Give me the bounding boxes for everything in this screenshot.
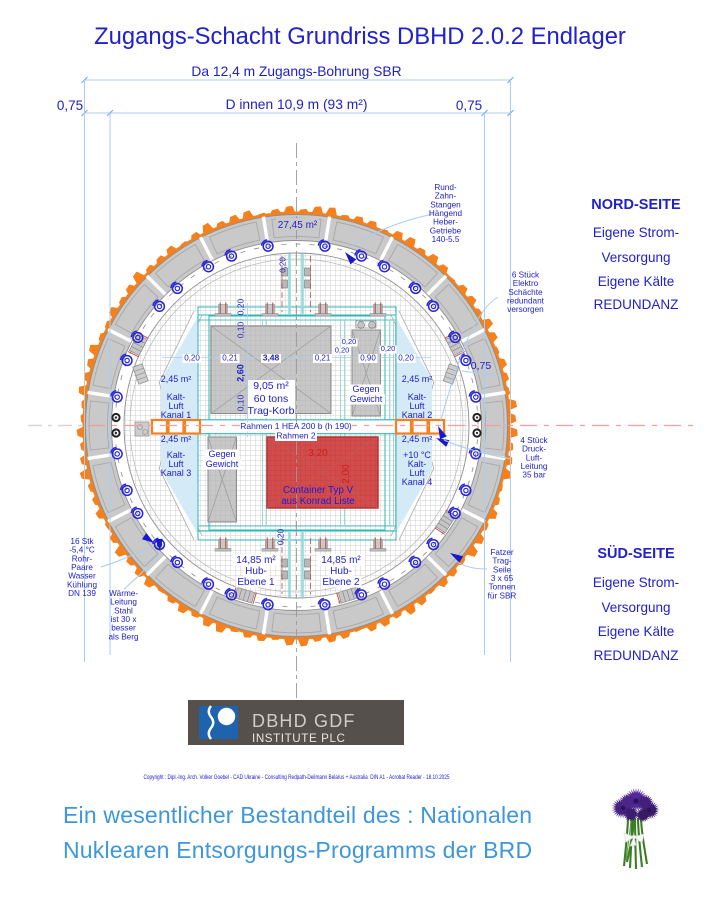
svg-text:REDUNDANZ: REDUNDANZ xyxy=(594,648,679,663)
svg-text:0,20: 0,20 xyxy=(335,346,350,355)
svg-text:aus Konrad Liste: aus Konrad Liste xyxy=(281,496,355,507)
svg-text:als Berg: als Berg xyxy=(108,632,138,641)
svg-text:Kanal 2: Kanal 2 xyxy=(402,410,433,420)
svg-text:0,75: 0,75 xyxy=(471,360,492,372)
svg-text:Container Typ V: Container Typ V xyxy=(283,485,354,496)
svg-text:Trag-: Trag- xyxy=(492,557,512,566)
svg-text:REDUNDANZ: REDUNDANZ xyxy=(594,297,679,312)
svg-text:6 Stück: 6 Stück xyxy=(512,271,540,280)
svg-text:Hub-: Hub- xyxy=(330,566,352,577)
svg-text:Kanal 1: Kanal 1 xyxy=(161,410,192,420)
svg-text:Luft-: Luft- xyxy=(526,453,543,462)
svg-text:2,45 m²: 2,45 m² xyxy=(402,374,433,384)
svg-text:Druck-: Druck- xyxy=(522,445,546,454)
svg-text:Ein wesentlicher Bestandteil d: Ein wesentlicher Bestandteil des : Natio… xyxy=(63,802,532,828)
svg-text:4 Stück: 4 Stück xyxy=(520,436,548,445)
svg-text:Hängend: Hängend xyxy=(429,209,463,218)
svg-text:Rahmen 1 HEA 200 b (h 190): Rahmen 1 HEA 200 b (h 190) xyxy=(240,421,352,431)
svg-text:Versorgung: Versorgung xyxy=(601,250,670,265)
svg-text:0,75: 0,75 xyxy=(57,98,83,113)
svg-text:0,21: 0,21 xyxy=(315,354,331,363)
svg-text:0,21: 0,21 xyxy=(222,354,238,363)
svg-text:Leitung: Leitung xyxy=(521,462,548,471)
svg-text:Eigene Strom-: Eigene Strom- xyxy=(593,575,679,590)
svg-text:0,10: 0,10 xyxy=(236,321,246,338)
svg-text:Wasser: Wasser xyxy=(68,572,96,581)
svg-text:Tonnen: Tonnen xyxy=(489,583,516,592)
svg-text:Elektro: Elektro xyxy=(513,279,539,288)
svg-text:Eigene Strom-: Eigene Strom- xyxy=(593,225,679,240)
svg-text:versorgen: versorgen xyxy=(507,305,544,314)
svg-text:2,00: 2,00 xyxy=(341,464,352,484)
svg-text:0,20: 0,20 xyxy=(279,257,288,273)
svg-text:Versorgung: Versorgung xyxy=(601,600,670,615)
svg-text:redundant: redundant xyxy=(507,296,545,305)
svg-text:Trag-Korb: Trag-Korb xyxy=(248,405,295,417)
svg-text:für SBR: für SBR xyxy=(488,591,517,600)
svg-text:0,20: 0,20 xyxy=(398,354,414,363)
svg-text:3,48: 3,48 xyxy=(263,353,280,363)
svg-text:Gewicht: Gewicht xyxy=(350,394,383,404)
svg-text:0,20: 0,20 xyxy=(276,528,286,545)
svg-text:3 x 65: 3 x 65 xyxy=(491,574,514,583)
svg-text:140-5.5: 140-5.5 xyxy=(432,235,460,244)
svg-text:3,20: 3,20 xyxy=(308,448,328,459)
svg-text:0,10: 0,10 xyxy=(236,394,246,411)
svg-text:Stahl: Stahl xyxy=(114,606,133,615)
svg-text:16 Stk: 16 Stk xyxy=(70,537,94,546)
svg-text:INSTITUTE PLC: INSTITUTE PLC xyxy=(252,732,345,745)
svg-text:27,45 m²: 27,45 m² xyxy=(278,220,318,231)
svg-text:Fatzer: Fatzer xyxy=(490,548,513,557)
svg-text:2,45 m²: 2,45 m² xyxy=(402,434,433,444)
svg-text:Copyright : Dipl.-Ing. Arch. V: Copyright : Dipl.-Ing. Arch. Volker Goeb… xyxy=(144,774,450,781)
svg-text:Eigene Kälte: Eigene Kälte xyxy=(598,624,675,639)
svg-text:Kanal 4: Kanal 4 xyxy=(402,477,433,487)
svg-text:DBHD GDF: DBHD GDF xyxy=(252,711,356,731)
svg-text:2,60: 2,60 xyxy=(236,364,246,382)
svg-text:Eigene Kälte: Eigene Kälte xyxy=(598,274,675,289)
svg-text:0,20: 0,20 xyxy=(381,344,396,353)
svg-text:Paare: Paare xyxy=(71,563,93,572)
svg-text:Leitung: Leitung xyxy=(110,598,137,607)
svg-text:ist 30 x: ist 30 x xyxy=(111,615,137,624)
svg-text:NORD-SEITE: NORD-SEITE xyxy=(591,197,681,213)
svg-text:9,05 m²: 9,05 m² xyxy=(253,380,289,392)
svg-text:Schächte: Schächte xyxy=(508,288,543,297)
svg-text:35 bar: 35 bar xyxy=(522,471,545,480)
svg-text:14,85 m²: 14,85 m² xyxy=(321,555,361,566)
svg-text:Da 12,4 m Zugangs-Bohrung SBR: Da 12,4 m Zugangs-Bohrung SBR xyxy=(191,64,401,79)
svg-text:besser: besser xyxy=(111,624,136,633)
svg-text:Rohr-: Rohr- xyxy=(72,554,93,563)
svg-text:Gegen: Gegen xyxy=(352,384,379,394)
svg-text:Nuklearen Entsorgungs-Programm: Nuklearen Entsorgungs-Programms der BRD xyxy=(63,837,532,863)
svg-text:DN 139: DN 139 xyxy=(68,589,96,598)
svg-text:2,45 m²: 2,45 m² xyxy=(161,374,192,384)
svg-text:0,90: 0,90 xyxy=(360,354,376,363)
svg-text:0,20: 0,20 xyxy=(236,298,246,315)
svg-text:Stangen: Stangen xyxy=(430,200,461,209)
svg-text:Gegen: Gegen xyxy=(208,449,235,459)
svg-text:Kühlung: Kühlung xyxy=(67,580,97,589)
svg-text:Kanal 3: Kanal 3 xyxy=(161,468,192,478)
svg-text:0,20: 0,20 xyxy=(184,354,200,363)
svg-text:2,45 m²: 2,45 m² xyxy=(161,434,192,444)
svg-text:Gewicht: Gewicht xyxy=(206,459,239,469)
svg-text:Rahmen 2: Rahmen 2 xyxy=(276,431,315,441)
svg-text:0,75: 0,75 xyxy=(456,98,482,113)
svg-text:Getriebe: Getriebe xyxy=(430,226,462,235)
svg-text:Hub-: Hub- xyxy=(245,566,267,577)
svg-text:D innen 10,9 m (93 m²): D innen 10,9 m (93 m²) xyxy=(226,97,368,112)
svg-text:Ebene 2: Ebene 2 xyxy=(322,577,360,588)
svg-text:14,85 m²: 14,85 m² xyxy=(236,555,276,566)
svg-text:Heber-: Heber- xyxy=(433,218,458,227)
svg-text:Rund-: Rund- xyxy=(434,183,457,192)
svg-text:60 tons: 60 tons xyxy=(254,393,288,405)
svg-text:Zugangs-Schacht Grundriss DBHD: Zugangs-Schacht Grundriss DBHD 2.0.2 End… xyxy=(94,23,626,50)
svg-text:Zahn-: Zahn- xyxy=(435,192,457,201)
svg-text:-5,4 °C: -5,4 °C xyxy=(69,546,95,555)
svg-text:SÜD-SEITE: SÜD-SEITE xyxy=(597,545,675,562)
svg-text:Seile: Seile xyxy=(493,565,512,574)
svg-text:Ebene 1: Ebene 1 xyxy=(237,577,275,588)
svg-text:Wärme-: Wärme- xyxy=(109,589,138,598)
